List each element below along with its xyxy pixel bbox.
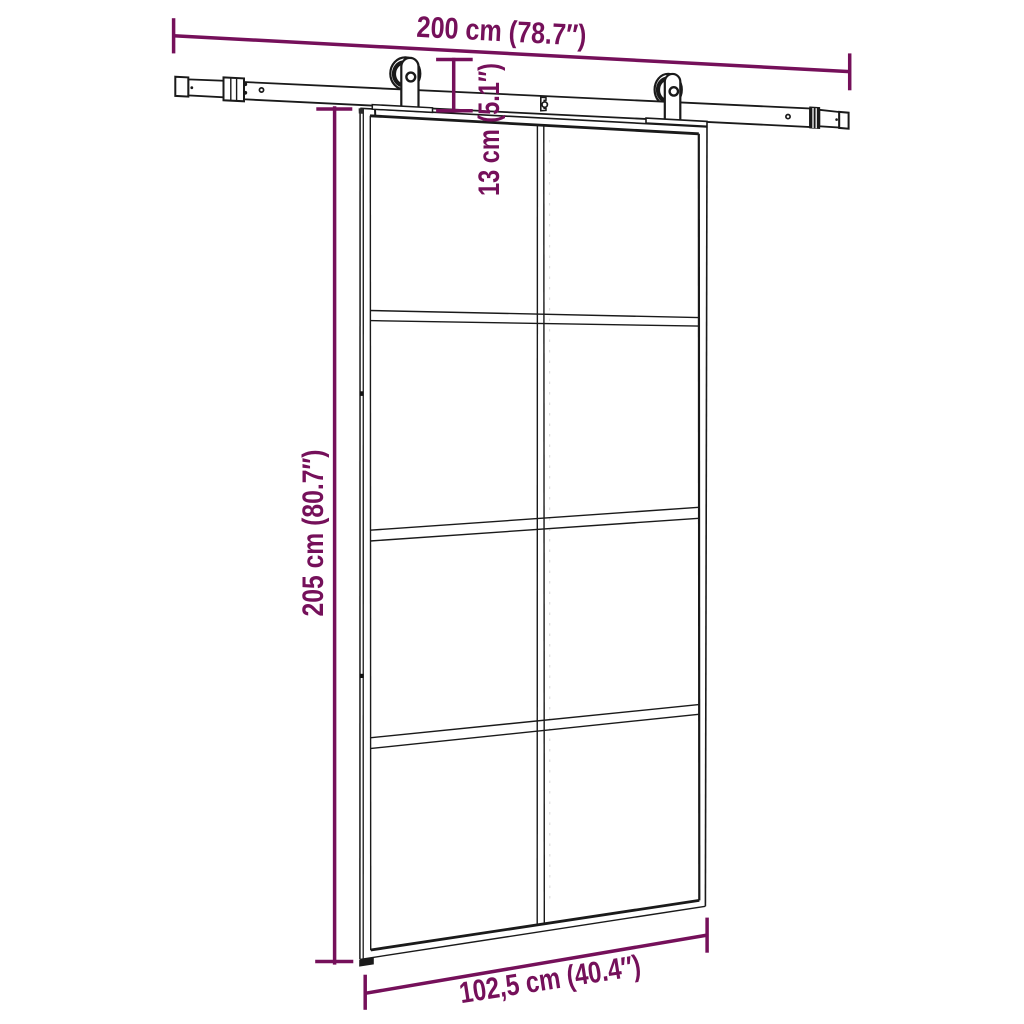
svg-text:13 cm (5.1″): 13 cm (5.1″) [473,63,506,196]
svg-text:102,5 cm (40.4″): 102,5 cm (40.4″) [457,950,643,1011]
svg-text:200 cm (78.7″): 200 cm (78.7″) [416,11,588,53]
svg-text:205 cm (80.7″): 205 cm (80.7″) [297,450,330,617]
